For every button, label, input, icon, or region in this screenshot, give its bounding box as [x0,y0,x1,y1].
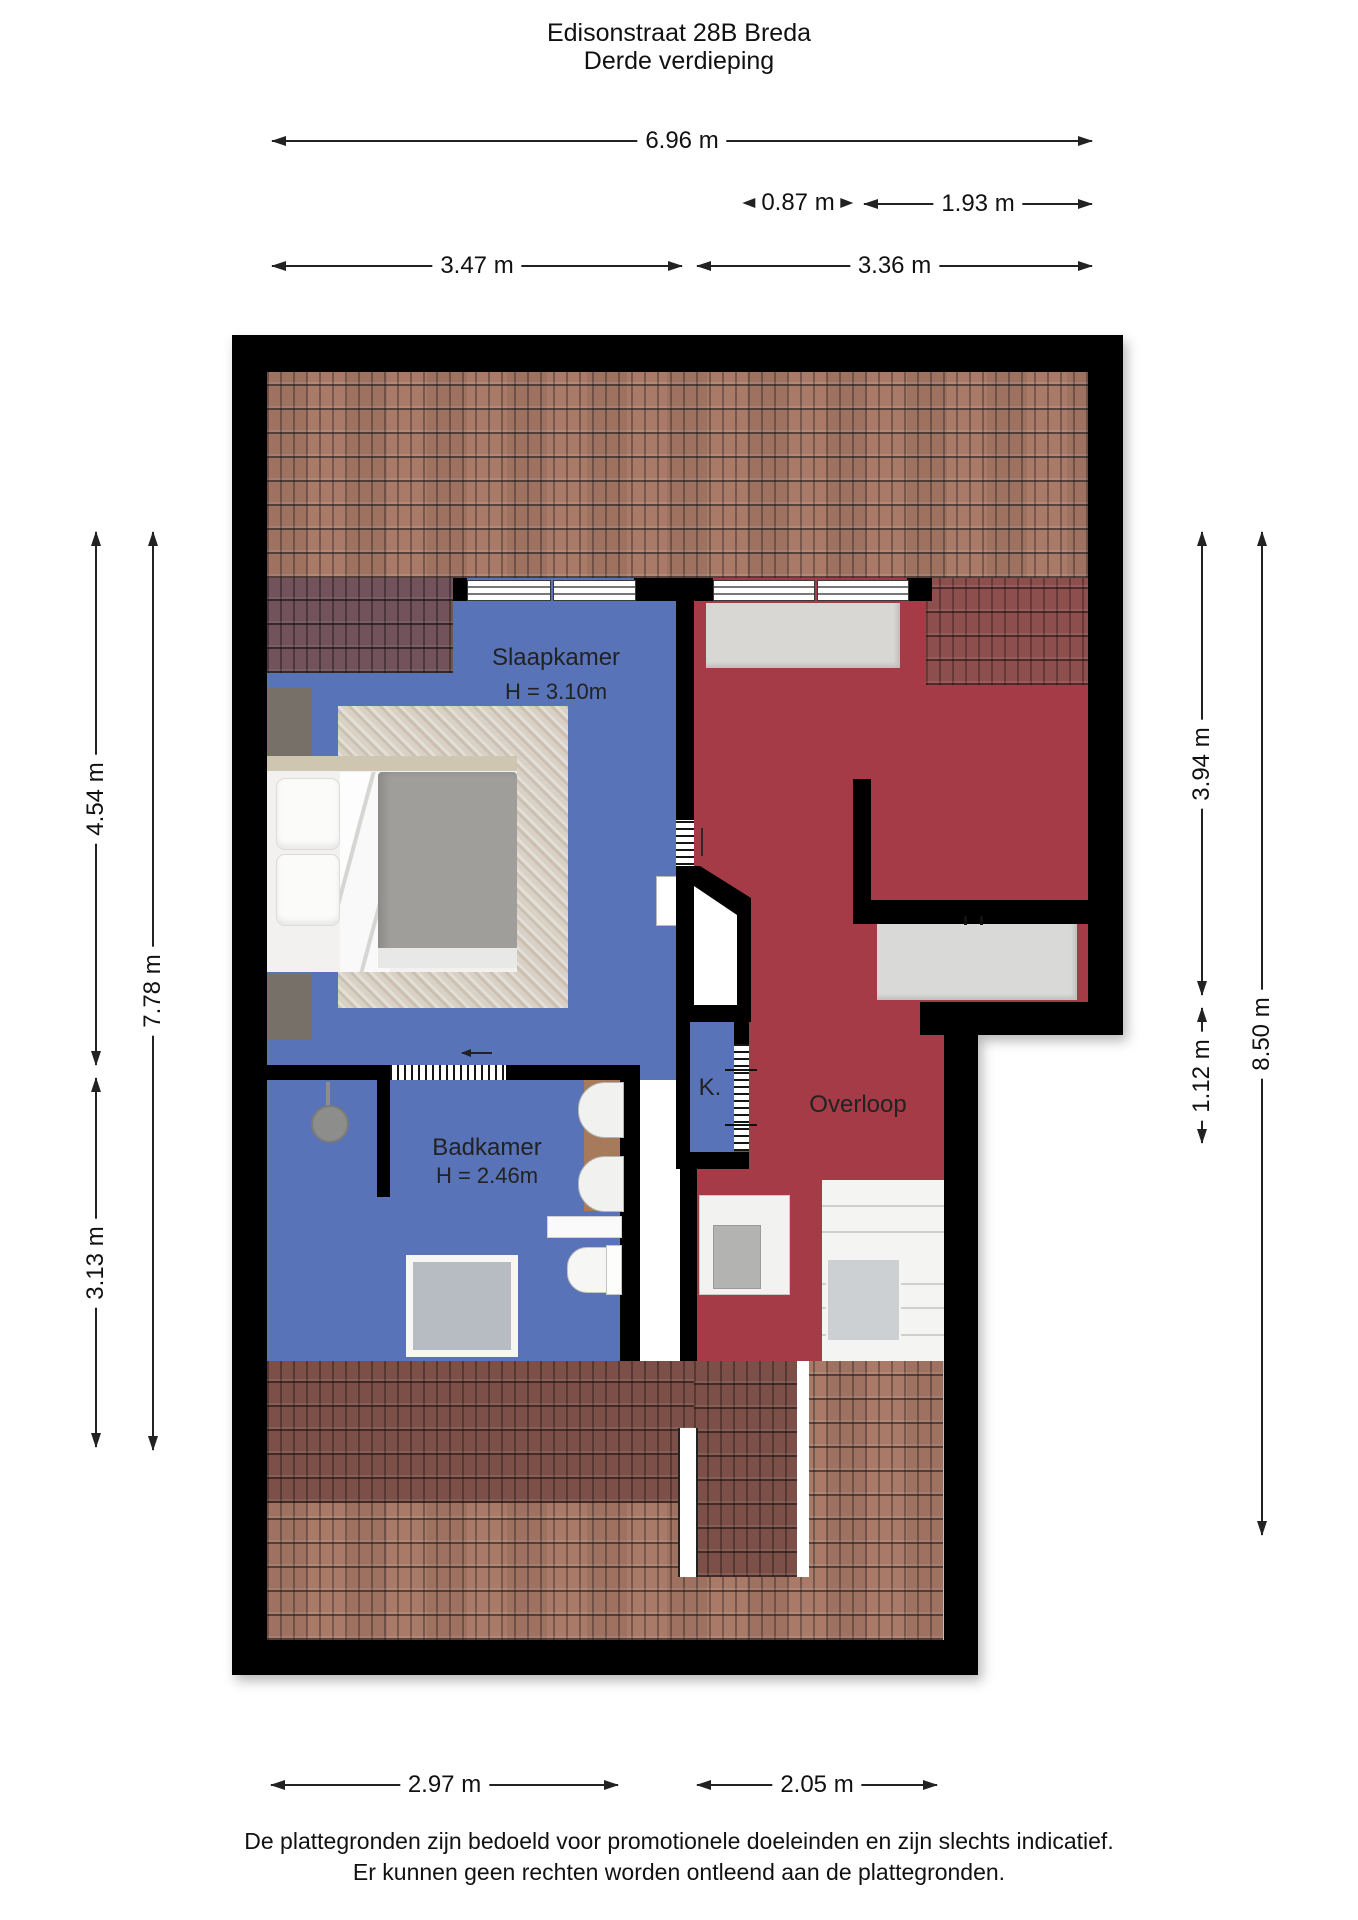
roof-tiles-top [267,372,1088,578]
roof-gap-left [678,1428,698,1577]
footer-disclaimer-2: Er kunnen geen rechten worden ontleend a… [0,1857,1358,1888]
shower-head-icon [311,1105,349,1143]
wall-outer-left [232,335,267,1675]
entry-arrow-icon [462,1052,492,1054]
wall-badkamer-top [506,1065,640,1080]
roof-tiles-over-overloop [926,578,1088,685]
label-slaapkamer: Slaapkamer [492,644,620,672]
roof-tiles-over-slaapkamer [267,578,453,673]
label-kast: K. [699,1074,722,1102]
label-badkamer-height: H = 2.46m [436,1163,538,1189]
pillow [276,778,340,850]
floorplan-page: Edisonstraat 28B Breda Derde verdieping … [0,0,1358,1920]
door-kast-icon [734,1044,749,1151]
wall-kast-bottom [676,1152,749,1169]
nightstand [268,688,312,756]
wall-step [920,1002,1123,1035]
label-badkamer: Badkamer [432,1134,541,1162]
bed [267,756,517,972]
door-badkamer-icon [390,1065,506,1080]
roof-tiles-bottom-dark-left [267,1361,694,1503]
washing-machine [699,1195,790,1295]
floorplan: Slaapkamer H = 3.10m Badkamer H = 2.46m … [0,0,1358,1920]
shower-tray-base [413,1262,511,1350]
stair-tread [822,1205,944,1207]
shower-tray [406,1255,518,1357]
corridor-void [640,1080,680,1361]
toilet [567,1247,610,1293]
window-icon [553,580,636,601]
headboard [267,756,517,771]
wall-window-seg [453,578,467,601]
door-tick [725,1124,757,1126]
handle-tick [980,916,983,925]
duvet [378,772,517,962]
wall-kast-left [676,1022,690,1152]
wall-divider [676,578,694,820]
label-slaapkamer-height: H = 3.10m [505,679,607,705]
wall-corridor [680,1169,697,1361]
duvet-fold [378,948,517,968]
wall-badkamer-top [267,1065,390,1080]
label-overloop: Overloop [809,1091,906,1119]
sink [578,1082,624,1138]
roof-gap-right [797,1361,809,1577]
wall-outer-right-upper [1088,335,1123,1035]
wall-kast-top [734,1022,749,1044]
roof-void-trapezoid [672,853,756,1025]
window-icon [817,580,909,601]
wall-niche-top [853,900,1088,924]
stair-tread [822,1231,944,1233]
stair-landing [826,1258,901,1342]
stair-direction-arrow [701,828,703,856]
washing-machine-door [713,1225,761,1289]
stairs [822,1180,944,1361]
handle-tick [964,916,967,925]
wall-window-seg [907,578,932,601]
roof-tiles-bottom-dark-center [694,1361,797,1577]
pillow [276,854,340,926]
wall-outer-bottom [232,1640,978,1675]
wall-window-seg [634,578,713,601]
sink [578,1156,624,1212]
door-tick [725,1069,757,1071]
wall-outer-right-lower [944,1035,978,1675]
dresser [706,603,900,668]
footer-disclaimer-1: De plattegronden zijn bedoeld voor promo… [0,1826,1358,1857]
window-icon [467,580,551,601]
nightstand [268,974,312,1040]
shelf [547,1216,622,1238]
sideboard [877,924,1077,1000]
wall-badkamer-stub [377,1080,390,1197]
wall-outer-top [232,335,1123,372]
toilet-tank [606,1245,622,1295]
window-icon [713,580,815,601]
